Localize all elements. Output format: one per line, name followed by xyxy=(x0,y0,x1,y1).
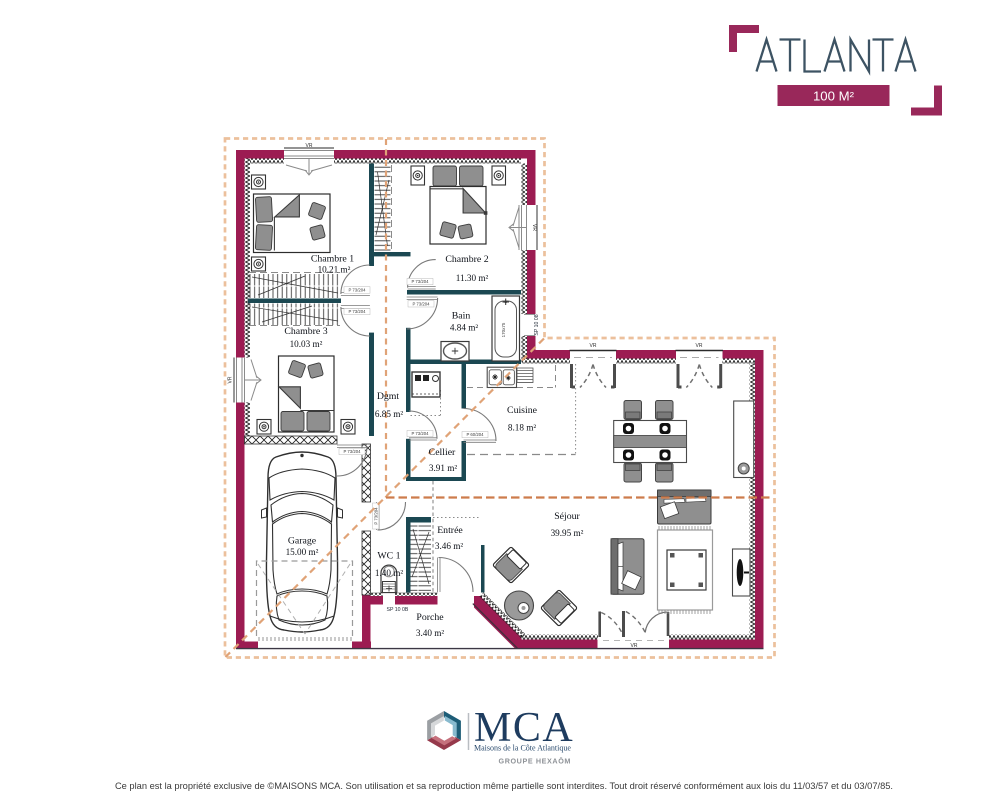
svg-text:VR: VR xyxy=(590,343,597,349)
svg-text:Séjour: Séjour xyxy=(554,511,580,522)
svg-text:Cuisine: Cuisine xyxy=(507,405,538,416)
svg-text:8.18 m²: 8.18 m² xyxy=(508,423,537,433)
svg-text:4.84 m²: 4.84 m² xyxy=(450,323,479,333)
svg-text:170x75: 170x75 xyxy=(501,322,506,337)
svg-text:10.21 m²: 10.21 m² xyxy=(318,265,351,275)
svg-text:1.40 m²: 1.40 m² xyxy=(375,568,404,578)
svg-text:P 73/204: P 73/204 xyxy=(412,301,430,306)
svg-text:Bain: Bain xyxy=(452,311,471,322)
svg-text:Chambre 3: Chambre 3 xyxy=(284,326,327,337)
svg-text:SP 10 0B: SP 10 0B xyxy=(387,607,409,613)
svg-text:Cellier: Cellier xyxy=(429,447,456,458)
svg-text:Dgmt: Dgmt xyxy=(377,391,400,402)
svg-text:P 73/204: P 73/204 xyxy=(411,279,429,284)
svg-text:SP 10 08: SP 10 08 xyxy=(534,314,540,335)
svg-text:6.85 m²: 6.85 m² xyxy=(375,409,404,419)
svg-text:VR: VR xyxy=(696,343,703,349)
svg-text:Garage: Garage xyxy=(288,536,317,547)
svg-text:39.95 m²: 39.95 m² xyxy=(551,528,584,538)
svg-text:VR: VR xyxy=(228,376,234,383)
svg-text:P 73/204: P 73/204 xyxy=(411,431,429,436)
svg-text:Chambre 2: Chambre 2 xyxy=(445,254,488,265)
svg-text:P 73/204: P 73/204 xyxy=(343,449,361,454)
svg-text:P 60/204: P 60/204 xyxy=(466,432,484,437)
svg-text:Porche: Porche xyxy=(416,612,444,623)
svg-text:10.03 m²: 10.03 m² xyxy=(290,339,323,349)
svg-text:GROUPE HEXAŌM: GROUPE HEXAŌM xyxy=(499,757,572,766)
svg-text:11.30 m²: 11.30 m² xyxy=(456,273,489,283)
svg-text:Entrée: Entrée xyxy=(437,525,463,536)
svg-text:3.91 m²: 3.91 m² xyxy=(429,463,458,473)
svg-text:VR: VR xyxy=(631,643,638,649)
svg-text:Ce plan est la propriété exclu: Ce plan est la propriété exclusive de ©M… xyxy=(115,781,893,791)
svg-text:P 73/204: P 73/204 xyxy=(348,309,366,314)
svg-text:P 73/204: P 73/204 xyxy=(348,288,366,293)
svg-text:3.40 m²: 3.40 m² xyxy=(416,628,445,638)
svg-text:Maisons de la Côte Atlantique: Maisons de la Côte Atlantique xyxy=(474,744,571,753)
svg-text:15.00 m²: 15.00 m² xyxy=(286,547,319,557)
svg-text:100 M²: 100 M² xyxy=(813,89,855,104)
svg-text:3.46 m²: 3.46 m² xyxy=(435,541,464,551)
svg-text:VR: VR xyxy=(306,143,313,149)
svg-text:WC 1: WC 1 xyxy=(377,551,400,562)
svg-text:Chambre 1: Chambre 1 xyxy=(311,254,354,265)
svg-text:VR: VR xyxy=(531,224,537,231)
